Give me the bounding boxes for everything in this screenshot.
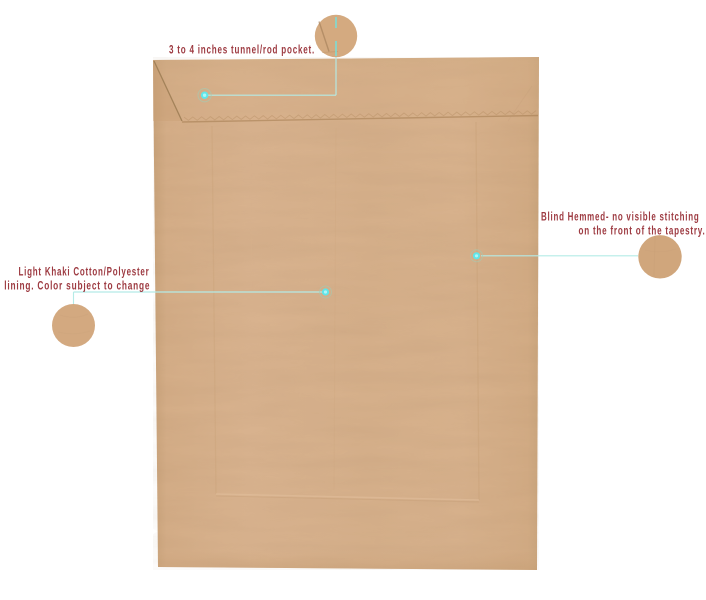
- svg-text:on the front of the tapestry.: on the front of the tapestry.: [579, 223, 706, 237]
- svg-text:lining. Color subject to chang: lining. Color subject to change: [4, 279, 150, 293]
- svg-text:Blind Hemmed- no visible stitc: Blind Hemmed- no visible stitching: [541, 209, 700, 223]
- svg-text:Light Khaki Cotton/Polyester: Light Khaki Cotton/Polyester: [19, 264, 150, 278]
- svg-text:3 to 4 inches tunnel/rod pocke: 3 to 4 inches tunnel/rod pocket.: [169, 43, 315, 57]
